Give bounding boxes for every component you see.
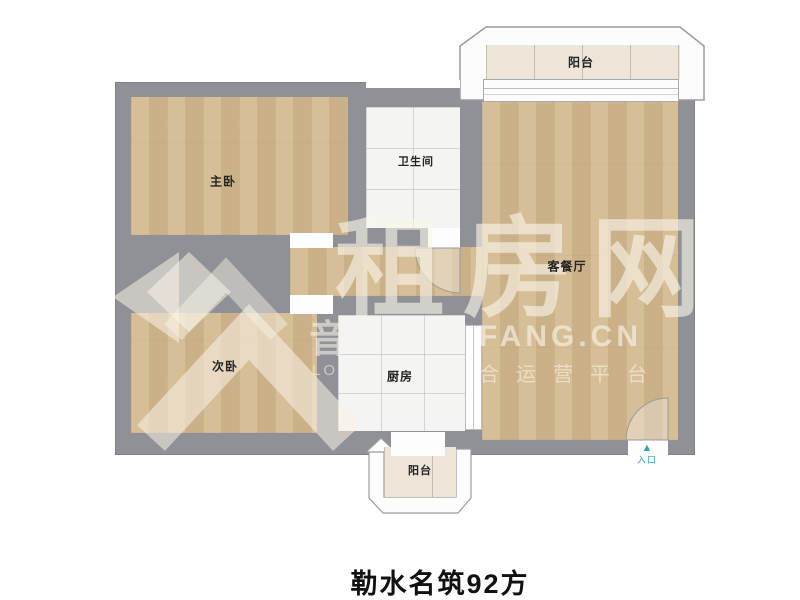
room-label-balcony-bottom: 阳台 <box>408 462 432 478</box>
floor-master-bedroom <box>131 97 348 235</box>
door-kitchen-sliding <box>465 325 482 430</box>
entrance-marker: ▲ 入口 <box>637 443 657 465</box>
plan-title: 勒水名筑92方 <box>42 562 800 600</box>
room-label-second-bedroom: 次卧 <box>212 358 238 375</box>
room-label-master-bedroom: 主卧 <box>210 173 236 190</box>
room-label-bathroom: 卫生间 <box>398 153 434 169</box>
entrance-label: 入口 <box>637 456 657 465</box>
floor-hallway <box>290 247 482 296</box>
wall-step <box>366 80 460 88</box>
floorplan-image: 租房网 音 LO FANG.CN 合运营平台 主卧 卫生间 客餐厅 次卧 厨房 … <box>0 0 800 600</box>
room-label-balcony-top: 阳台 <box>568 54 594 71</box>
entrance-arrow-icon: ▲ <box>637 443 657 454</box>
door-bathroom <box>428 228 460 248</box>
door-master-bedroom <box>290 233 333 248</box>
door-second-bedroom <box>290 295 333 314</box>
room-label-living-dining: 客餐厅 <box>547 258 586 275</box>
door-balcony-bottom <box>391 432 445 456</box>
window-living-top <box>483 79 679 102</box>
room-label-kitchen: 厨房 <box>387 368 413 385</box>
